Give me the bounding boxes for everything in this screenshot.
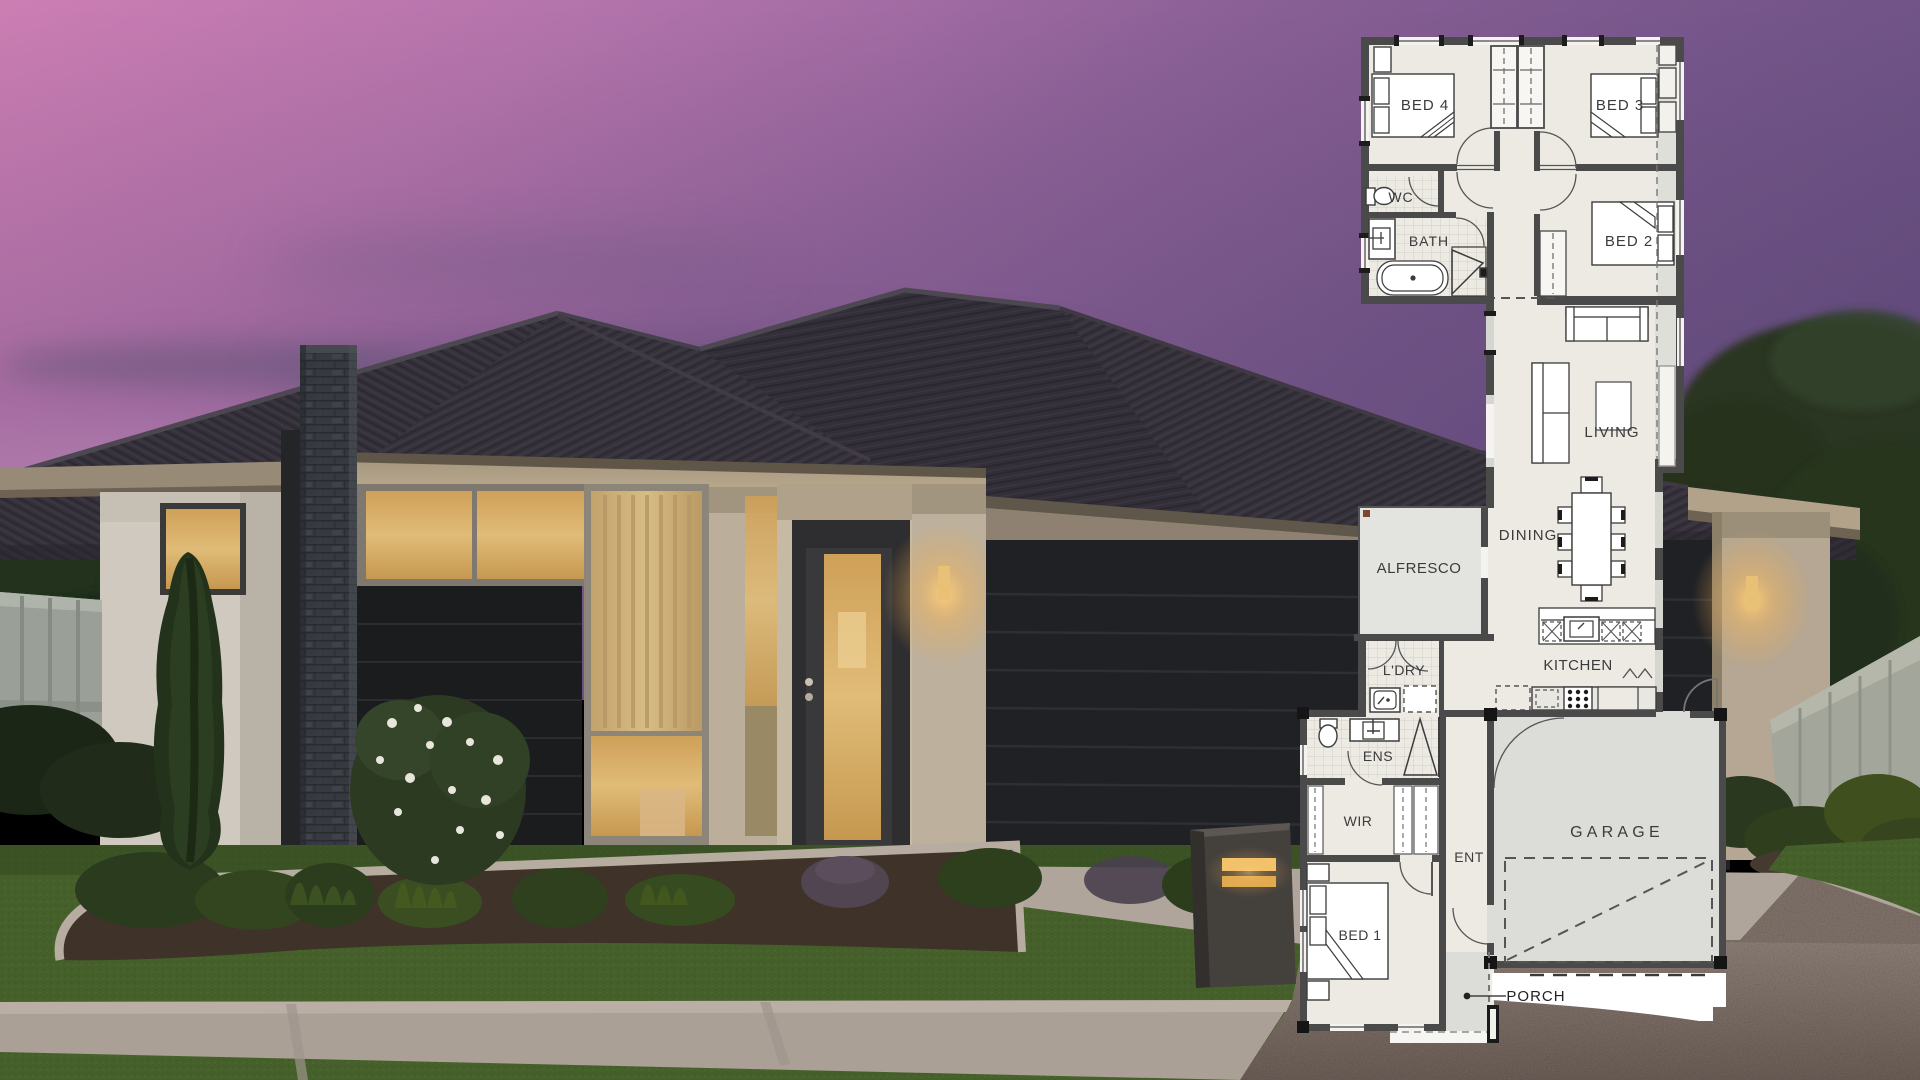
svg-text:DINING: DINING [1499,527,1558,544]
svg-text:LIVING: LIVING [1584,424,1639,441]
svg-text:BED 4: BED 4 [1401,97,1449,114]
svg-text:GARAGE: GARAGE [1570,824,1664,841]
svg-text:BATH: BATH [1409,233,1449,249]
svg-text:L'DRY: L'DRY [1383,662,1425,678]
svg-text:ALFRESCO: ALFRESCO [1377,560,1462,577]
svg-text:ENS: ENS [1363,748,1393,764]
svg-text:WIR: WIR [1344,813,1373,829]
svg-text:BED 3: BED 3 [1596,97,1644,114]
svg-text:PORCH: PORCH [1506,988,1565,1005]
svg-text:KITCHEN: KITCHEN [1543,657,1612,674]
svg-text:WC: WC [1388,189,1413,205]
svg-text:BED 1: BED 1 [1339,927,1382,943]
svg-text:BED 2: BED 2 [1605,233,1653,250]
svg-text:ENT: ENT [1454,849,1484,865]
